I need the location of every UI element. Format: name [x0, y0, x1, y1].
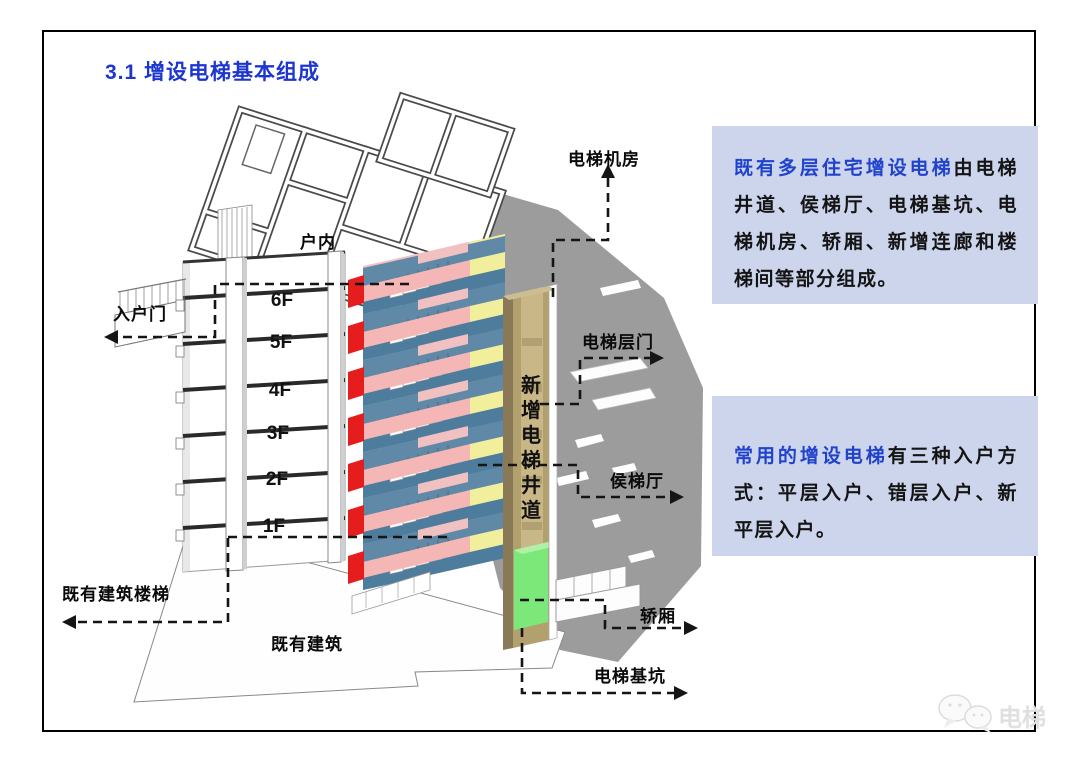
wechat-icon [939, 695, 992, 734]
svg-text:电: 电 [521, 424, 541, 447]
stair-section [348, 236, 505, 614]
watermark-text: 电梯 [998, 704, 1046, 732]
floor-label-4f: 4F [269, 380, 291, 401]
label-existing-stairs: 既有建筑楼梯 [62, 584, 170, 604]
label-entrance-door: 入户门 [113, 304, 167, 324]
svg-text:梯: 梯 [521, 448, 541, 472]
label-machine-room: 电梯机房 [568, 149, 640, 169]
svg-text:增: 增 [521, 398, 541, 422]
svg-text:新: 新 [521, 373, 541, 397]
watermark: 电梯 [939, 695, 1046, 734]
label-indoor: 户内 [300, 232, 336, 252]
floor-label-6f: 6F [271, 290, 293, 311]
label-waiting-hall: 侯梯厅 [610, 471, 664, 491]
label-existing-building: 既有建筑 [271, 634, 343, 654]
info-box-composition: 既有多层住宅增设电梯由电梯井道、侯梯厅、电梯基坑、电梯机房、轿厢、新增连廊和楼梯… [712, 126, 1038, 304]
label-car: 轿厢 [640, 606, 676, 626]
floor-label-1f: 1F [263, 516, 285, 537]
info-box-entry-modes: 常用的增设电梯有三种入户方式：平层入户、错层入户、新平层入户。 [712, 396, 1038, 556]
floor-label-5f: 5F [270, 332, 292, 353]
svg-text:道: 道 [521, 498, 541, 522]
label-pit: 电梯基坑 [594, 666, 666, 686]
slide: 3.1 增设电梯基本组成 [0, 0, 1080, 764]
floor-label-3f: 3F [267, 423, 289, 444]
facade [115, 251, 345, 572]
floor-label-2f: 2F [266, 469, 288, 490]
info-box-1-highlight: 既有多层住宅增设电梯 [734, 158, 954, 179]
roof-railing [218, 205, 252, 263]
svg-text:井: 井 [521, 474, 541, 497]
building-diagram: 户内 入户门 电梯机房 电梯层门 侯梯厅 轿厢 电梯基坑 既有建筑楼梯 既有建筑… [0, 0, 1080, 764]
info-box-2-highlight: 常用的增设电梯 [734, 446, 888, 467]
label-landing-door: 电梯层门 [582, 332, 654, 352]
elevator-car [514, 542, 548, 630]
